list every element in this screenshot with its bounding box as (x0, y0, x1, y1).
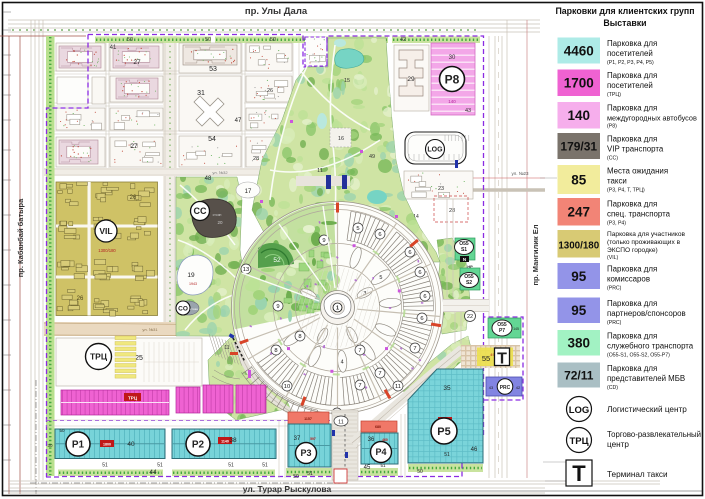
svg-text:P5: P5 (437, 426, 450, 438)
svg-text:20: 20 (217, 220, 223, 225)
svg-text:37: 37 (294, 436, 301, 442)
svg-text:43: 43 (489, 385, 494, 390)
svg-text:85: 85 (571, 172, 587, 187)
svg-text:51: 51 (380, 463, 386, 468)
svg-text:42: 42 (400, 37, 406, 43)
svg-text:25: 25 (135, 355, 143, 362)
svg-text:комиссаров: комиссаров (607, 275, 650, 284)
svg-text:6: 6 (420, 316, 423, 322)
svg-text:17: 17 (245, 189, 252, 195)
svg-text:145: 145 (513, 327, 519, 331)
svg-text:9: 9 (276, 304, 279, 310)
svg-text:ул. Турар Рыскулова: ул. Турар Рыскулова (243, 484, 332, 494)
svg-text:597: 597 (310, 437, 316, 441)
svg-text:такси: такси (607, 177, 627, 186)
svg-text:50: 50 (59, 428, 65, 433)
svg-text:посетителей: посетителей (607, 49, 653, 58)
svg-text:28: 28 (449, 208, 455, 214)
svg-text:49: 49 (369, 154, 375, 160)
svg-text:1300/180: 1300/180 (558, 241, 599, 252)
svg-text:680: 680 (375, 425, 381, 429)
svg-text:50: 50 (270, 37, 276, 43)
svg-text:7: 7 (413, 346, 416, 352)
svg-text:28: 28 (253, 156, 259, 162)
svg-text:31: 31 (197, 90, 205, 97)
svg-text:11: 11 (224, 345, 229, 351)
svg-text:HP: HP (467, 264, 473, 269)
svg-text:7: 7 (358, 348, 361, 354)
svg-text:Торгово-развлекательный: Торгово-развлекательный (607, 430, 701, 439)
svg-text:8: 8 (298, 334, 301, 340)
svg-text:51: 51 (228, 463, 234, 469)
svg-text:Парковка для: Парковка для (607, 135, 657, 144)
svg-text:50: 50 (293, 474, 299, 480)
svg-text:30: 30 (449, 55, 456, 61)
svg-text:ЭКСПО городке): ЭКСПО городке) (607, 247, 658, 254)
svg-text:Логистический центр: Логистический центр (607, 405, 687, 414)
svg-text:S1: S1 (461, 247, 467, 253)
svg-text:пр. Улы Дала: пр. Улы Дала (245, 6, 308, 17)
svg-text:15: 15 (344, 78, 350, 84)
svg-text:54: 54 (208, 136, 216, 143)
svg-text:50: 50 (127, 37, 133, 43)
svg-text:(ТРЦ): (ТРЦ) (607, 92, 621, 98)
svg-text:ул. №23: ул. №23 (511, 171, 529, 176)
svg-text:42: 42 (516, 385, 521, 390)
svg-text:6: 6 (378, 232, 381, 238)
svg-text:22: 22 (467, 314, 473, 320)
svg-text:(PRC): (PRC) (607, 286, 622, 292)
svg-text:29: 29 (407, 76, 415, 83)
svg-text:38: 38 (229, 437, 237, 444)
svg-text:6: 6 (408, 250, 411, 256)
svg-text:53: 53 (209, 66, 217, 73)
svg-text:40: 40 (127, 441, 135, 448)
svg-text:140: 140 (567, 108, 590, 123)
svg-text:50: 50 (205, 37, 211, 43)
svg-text:партнеров/спонсоров: партнеров/спонсоров (607, 309, 686, 318)
svg-text:Парковка для участников: Парковка для участников (607, 231, 685, 238)
svg-text:ул. №32: ул. №32 (212, 170, 228, 175)
svg-text:95: 95 (571, 303, 587, 318)
svg-text:11: 11 (395, 384, 401, 390)
svg-text:(VIL): (VIL) (607, 255, 619, 261)
svg-text:51: 51 (262, 463, 268, 469)
svg-text:1700: 1700 (564, 76, 594, 91)
svg-text:30: 30 (47, 443, 53, 448)
svg-text:6: 6 (423, 294, 426, 300)
svg-text:Парковка для: Парковка для (607, 364, 657, 373)
svg-text:Парковки для клиентских групп: Парковки для клиентских групп (555, 6, 694, 16)
svg-text:44: 44 (149, 469, 157, 476)
svg-text:стоян: стоян (213, 213, 222, 217)
svg-text:7: 7 (378, 371, 381, 377)
svg-text:11: 11 (317, 168, 323, 174)
svg-text:46: 46 (471, 447, 478, 453)
svg-text:Парковка для: Парковка для (607, 104, 657, 113)
svg-text:спец. транспорта: спец. транспорта (607, 210, 671, 219)
svg-text:1: 1 (336, 305, 339, 311)
svg-text:ТРЦ: ТРЦ (90, 352, 108, 362)
svg-text:36: 36 (368, 437, 375, 443)
svg-text:52: 52 (273, 257, 281, 264)
svg-text:1300/180: 1300/180 (98, 248, 116, 253)
svg-text:1800: 1800 (103, 443, 111, 447)
svg-text:LOG: LOG (427, 147, 443, 154)
svg-text:представителей МБВ: представителей МБВ (607, 374, 685, 383)
svg-text:(P3, P4, T, ТРЦ): (P3, P4, T, ТРЦ) (607, 188, 645, 194)
svg-text:(O55-S1, O55-S2, O55-P7): (O55-S1, O55-S2, O55-P7) (607, 353, 670, 359)
svg-text:35: 35 (443, 385, 451, 392)
svg-text:9: 9 (322, 238, 325, 244)
svg-text:10: 10 (284, 384, 290, 390)
svg-text:72/11: 72/11 (564, 368, 594, 382)
svg-text:стоян: стоян (190, 307, 198, 311)
svg-text:T: T (572, 461, 586, 486)
svg-text:380: 380 (567, 336, 590, 351)
svg-text:(CD): (CD) (607, 385, 618, 391)
svg-text:1943: 1943 (189, 282, 197, 286)
svg-text:51: 51 (102, 463, 108, 469)
svg-text:1157: 1157 (304, 417, 312, 421)
svg-text:(P8): (P8) (607, 124, 617, 130)
svg-text:P8: P8 (445, 72, 460, 86)
svg-text:19: 19 (187, 272, 195, 279)
svg-text:95: 95 (571, 269, 587, 284)
svg-text:16: 16 (338, 136, 344, 142)
svg-text:Парковка для: Парковка для (607, 71, 657, 80)
svg-text:посетителей: посетителей (607, 81, 653, 90)
svg-text:S2: S2 (466, 280, 472, 286)
svg-text:P1: P1 (72, 440, 85, 451)
svg-text:Терминал такси: Терминал такси (607, 470, 668, 479)
svg-text:4460: 4460 (564, 43, 594, 58)
svg-text:51: 51 (307, 471, 313, 477)
svg-text:P7: P7 (499, 328, 505, 334)
svg-text:Места ожидания: Места ожидания (607, 167, 668, 176)
svg-text:(P1, P2, P3, P4, P5): (P1, P2, P3, P4, P5) (607, 60, 654, 66)
svg-text:Парковка для: Парковка для (607, 265, 657, 274)
svg-text:пр. Кабанбай батыра: пр. Кабанбай батыра (16, 198, 25, 277)
svg-text:междугородных автобусов: междугородных автобусов (607, 114, 697, 123)
svg-text:50: 50 (417, 469, 423, 475)
svg-text:Выставки: Выставки (603, 18, 646, 28)
svg-text:CC: CC (194, 206, 207, 216)
svg-text:23: 23 (438, 186, 444, 192)
svg-text:43: 43 (465, 108, 471, 114)
svg-text:P3: P3 (300, 448, 311, 458)
svg-text:LOG: LOG (569, 405, 590, 416)
svg-text:Парковка для: Парковка для (607, 39, 657, 48)
svg-text:ТРЦ: ТРЦ (569, 436, 588, 447)
svg-text:13: 13 (243, 267, 249, 273)
svg-text:247: 247 (567, 205, 590, 220)
svg-text:(только проживающих в: (только проживающих в (607, 239, 681, 246)
svg-text:VIL: VIL (99, 226, 112, 236)
svg-text:55: 55 (482, 354, 490, 363)
svg-text:4: 4 (341, 359, 344, 365)
svg-text:179/31: 179/31 (560, 139, 597, 153)
svg-text:51: 51 (157, 463, 163, 469)
svg-text:51: 51 (444, 452, 450, 458)
svg-text:7: 7 (358, 383, 361, 389)
svg-text:140: 140 (448, 99, 456, 104)
svg-text:ул. №31: ул. №31 (142, 327, 158, 332)
svg-text:PRC: PRC (500, 385, 511, 391)
svg-text:P2: P2 (192, 440, 205, 451)
svg-text:1140: 1140 (221, 440, 229, 444)
svg-text:6: 6 (418, 270, 421, 276)
svg-text:27: 27 (130, 143, 138, 150)
svg-text:Парковка для: Парковка для (607, 200, 657, 209)
svg-text:(CC): (CC) (607, 156, 618, 162)
svg-text:VIP транспорта: VIP транспорта (607, 145, 664, 154)
svg-text:(PRC): (PRC) (607, 320, 622, 326)
svg-text:ТРЦ: ТРЦ (128, 396, 138, 401)
svg-text:26: 26 (267, 88, 273, 94)
svg-text:41: 41 (110, 45, 117, 51)
svg-text:27: 27 (133, 59, 141, 66)
svg-text:Парковка для: Парковка для (607, 332, 657, 341)
svg-text:N: N (463, 257, 466, 262)
svg-text:8: 8 (274, 348, 277, 354)
svg-text:5: 5 (356, 226, 359, 232)
svg-text:47: 47 (235, 118, 242, 124)
svg-text:26: 26 (130, 195, 137, 201)
svg-text:T: T (497, 351, 507, 368)
svg-text:CO: CO (178, 305, 188, 312)
svg-text:45: 45 (364, 465, 371, 471)
svg-text:пр. Мангилик Ел: пр. Мангилик Ел (531, 224, 540, 285)
svg-text:служебного транспорта: служебного транспорта (607, 342, 694, 351)
svg-text:центр: центр (607, 440, 629, 449)
svg-text:(P3, P4): (P3, P4) (607, 221, 626, 227)
svg-text:26: 26 (77, 296, 84, 302)
svg-text:5: 5 (379, 275, 382, 281)
svg-text:P4: P4 (375, 447, 386, 457)
svg-text:Парковка для: Парковка для (607, 299, 657, 308)
svg-text:11: 11 (338, 420, 344, 426)
svg-text:48: 48 (205, 176, 212, 182)
